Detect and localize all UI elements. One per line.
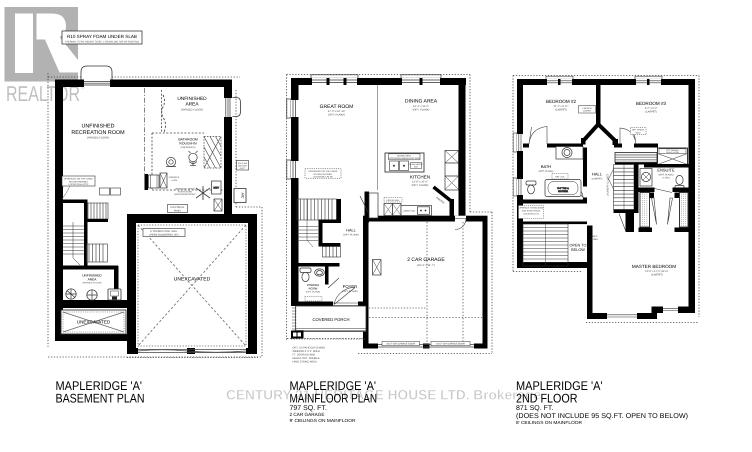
- svg-text:(CARPET): (CARPET): [555, 108, 567, 111]
- svg-text:UPGRADED ON-THE-CABLE: UPGRADED ON-THE-CABLE: [64, 178, 94, 181]
- svg-text:OPT. TILE: OPT. TILE: [555, 175, 565, 178]
- svg-text:2 CAR GARAGE: 2 CAR GARAGE: [407, 257, 445, 263]
- svg-text:BELOW: BELOW: [571, 248, 585, 252]
- svg-text:BASEMENT PLAN: BASEMENT PLAN: [56, 392, 145, 406]
- svg-text:PANEL: PANEL: [174, 209, 182, 212]
- svg-text:(CARPET): (CARPET): [645, 110, 657, 113]
- svg-text:LOCATION in ATTIC: LOCATION in ATTIC: [313, 176, 333, 179]
- svg-text:MASTER BEDROOM: MASTER BEDROOM: [632, 264, 676, 269]
- svg-text:16'x7' O/H GARAGE DOOR: 16'x7' O/H GARAGE DOOR: [386, 343, 415, 346]
- svg-text:FOR FUTURE: FOR FUTURE: [178, 190, 193, 193]
- svg-text:BAR: BAR: [414, 165, 419, 168]
- svg-text:2ND FLOOR: 2ND FLOOR: [516, 392, 578, 406]
- svg-text:ROOM: ROOM: [309, 286, 318, 290]
- svg-text:ELECTRICAL: ELECTRICAL: [170, 206, 185, 209]
- svg-text:SHOWER: SHOWER: [558, 190, 568, 193]
- svg-text:(OPT. PLANK): (OPT. PLANK): [413, 108, 430, 111]
- svg-text:RECREATION ROOM: RECREATION ROOM: [71, 130, 125, 136]
- svg-text:+ HRV: + HRV: [171, 179, 178, 182]
- svg-text:R10 SPRAY FOAM UNDER SLAB: R10 SPRAY FOAM UNDER SLAB: [67, 34, 137, 39]
- svg-text:UPGRADE TO RAILING&: UPGRADE TO RAILING&: [519, 207, 544, 210]
- svg-text:LOCATION A-13: LOCATION A-13: [523, 212, 539, 215]
- svg-text:LOWER CAB.: LOWER CAB.: [403, 210, 416, 213]
- svg-text:SMK'D: SMK'D: [591, 235, 598, 238]
- svg-text:BEDROOM #2: BEDROOM #2: [546, 99, 577, 104]
- svg-text:(OPT. PLANK): (OPT. PLANK): [659, 173, 674, 176]
- svg-text:(CARPET): (CARPET): [651, 273, 663, 276]
- svg-text:ROUGH-IN: ROUGH-IN: [179, 142, 197, 146]
- svg-text:(OPT. PLANK): (OPT. PLANK): [343, 233, 359, 236]
- svg-text:(18'-4" x 18'-7"): (18'-4" x 18'-7"): [417, 264, 435, 267]
- svg-text:BATH: BATH: [541, 164, 551, 169]
- svg-text:9' CEILINGS ON MAINFLOOR: 9' CEILINGS ON MAINFLOOR: [290, 418, 356, 423]
- svg-text:LOCATION in ATTIC: LOCATION in ATTIC: [69, 183, 89, 186]
- svg-text:KITCHEN: KITCHEN: [410, 175, 430, 180]
- svg-text:2 CAR GARAGE: 2 CAR GARAGE: [290, 412, 325, 417]
- svg-text:RETURN: RETURN: [238, 165, 247, 168]
- svg-text:DOORS: DOORS: [583, 110, 591, 113]
- svg-text:ROUGH-IN PANEL: ROUGH-IN PANEL: [314, 173, 333, 176]
- svg-text:OPT. WNDW: OPT. WNDW: [632, 129, 644, 132]
- svg-text:CENTURY 21 HERITAGE HOUSE LTD.: CENTURY 21 HERITAGE HOUSE LTD. Brokerage: [226, 388, 541, 403]
- svg-text:OAK STAIR TREAD: OAK STAIR TREAD: [522, 210, 541, 213]
- svg-text:SEAT: SEAT: [635, 131, 641, 134]
- svg-text:(PARGED FLOOR): (PARGED FLOOR): [83, 282, 102, 285]
- svg-text:UPGRADED BREAKFAST BAR: UPGRADED BREAKFAST BAR: [389, 157, 420, 160]
- svg-text:UNEXCAVATED: UNEXCAVATED: [77, 320, 111, 325]
- svg-text:ROUGHTIN/PANEL: ROUGHTIN/PANEL: [69, 180, 89, 183]
- svg-text:5'-0" TUB &: 5'-0" TUB &: [557, 187, 569, 190]
- svg-text:SHELF & ROD: SHELF & ROD: [666, 151, 679, 154]
- svg-text:BATHROOM GROUP: BATHROOM GROUP: [174, 193, 196, 196]
- svg-text:797 SQ. FT.: 797 SQ. FT.: [290, 405, 327, 412]
- svg-text:(OPT. PLANK): (OPT. PLANK): [306, 290, 320, 293]
- svg-text:(OPT. PLANK): (OPT. PLANK): [328, 113, 345, 116]
- svg-text:ENSUITE: ENSUITE: [657, 168, 675, 173]
- svg-text:A/C: A/C: [241, 193, 245, 199]
- svg-text:(OPT. PLANK): (OPT. PLANK): [412, 184, 429, 187]
- svg-text:LAUNDRY CLOSET: LAUNDRY CLOSET: [607, 173, 610, 196]
- svg-text:HALL: HALL: [592, 172, 603, 177]
- svg-text:(UNFINISHED): (UNFINISHED): [181, 146, 196, 149]
- svg-text:BEDROOM #3: BEDROOM #3: [636, 101, 667, 106]
- svg-text:6" POURED CONC. WALL: 6" POURED CONC. WALL: [150, 230, 178, 233]
- svg-text:UPGRADED SPACE: UPGRADED SPACE: [175, 188, 196, 191]
- svg-text:UPPERS ABV.: UPPERS ABV.: [386, 199, 399, 202]
- svg-text:HING STRIKE AREA: HING STRIKE AREA: [293, 361, 317, 364]
- svg-text:UNEXCAVATED: UNEXCAVATED: [174, 277, 211, 283]
- svg-text:COLD AIR: COLD AIR: [238, 162, 248, 165]
- svg-text:AREA: AREA: [88, 277, 98, 281]
- svg-text:(PARGED FLOOR): (PARGED FLOOR): [181, 109, 203, 112]
- svg-text:THERMAL TOTAL HEIGHT TO BE 1': THERMAL TOTAL HEIGHT TO BE 1' OR BELOW T…: [65, 41, 139, 44]
- svg-text:HWT: HWT: [213, 187, 219, 190]
- svg-text:CO/MB: CO/MB: [590, 238, 598, 241]
- svg-text:(+ WC): (+ WC): [662, 176, 670, 179]
- svg-text:MAINFLOOR PLAN: MAINFLOOR PLAN: [290, 392, 378, 406]
- svg-text:(PIERS ENGINEERED JST): (PIERS ENGINEERED JST): [150, 234, 179, 237]
- svg-text:8' CEILINGS ON MAINFLOOR: 8' CEILINGS ON MAINFLOOR: [516, 420, 582, 425]
- svg-text:UPGRADED ON-THE-CABLE: UPGRADED ON-THE-CABLE: [308, 170, 338, 173]
- svg-text:ISLAND WITH: ISLAND WITH: [397, 154, 412, 157]
- svg-text:(CARPET): (CARPET): [592, 177, 603, 180]
- svg-text:DUCT: DUCT: [240, 167, 246, 170]
- svg-text:DINING AREA: DINING AREA: [405, 99, 438, 105]
- svg-text:FURNACE: FURNACE: [169, 176, 180, 179]
- svg-text:(OPT. PLANK): (OPT. PLANK): [539, 170, 554, 173]
- svg-text:AREA: AREA: [185, 102, 199, 108]
- svg-text:UNFINISHED: UNFINISHED: [177, 96, 207, 102]
- svg-text:HALL: HALL: [346, 229, 356, 233]
- svg-text:FRENCH: FRENCH: [583, 107, 592, 110]
- svg-text:(PARGED FLOOR): (PARGED FLOOR): [87, 137, 109, 140]
- svg-text:COVERED PORCH: COVERED PORCH: [313, 317, 350, 322]
- svg-text:(DOES NOT INCLUDE 95 SQ.FT. OP: (DOES NOT INCLUDE 95 SQ.FT. OPEN TO BELO…: [516, 412, 688, 420]
- svg-text:UNFINISHED: UNFINISHED: [82, 124, 115, 130]
- svg-text:871 SQ. FT.: 871 SQ. FT.: [516, 405, 553, 412]
- svg-text:16'x7' O/H GARAGE DOOR: 16'x7' O/H GARAGE DOOR: [436, 343, 465, 346]
